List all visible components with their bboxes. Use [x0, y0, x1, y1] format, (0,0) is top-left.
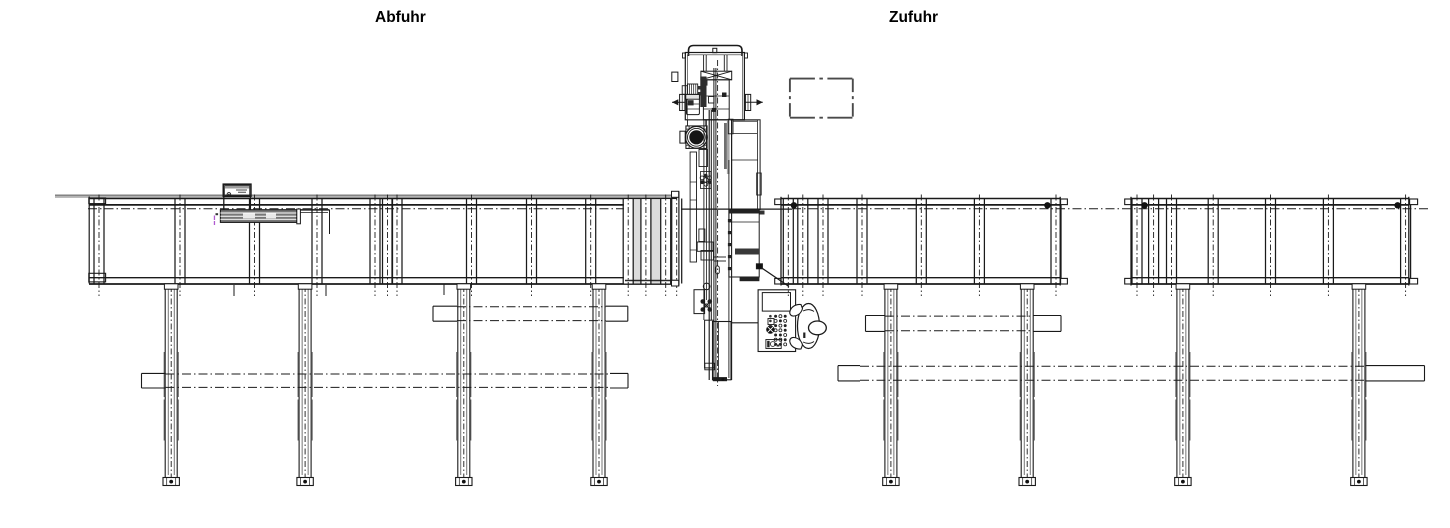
svg-text:Zufuhr: Zufuhr	[889, 9, 938, 26]
svg-text:Abfuhr: Abfuhr	[375, 9, 426, 26]
